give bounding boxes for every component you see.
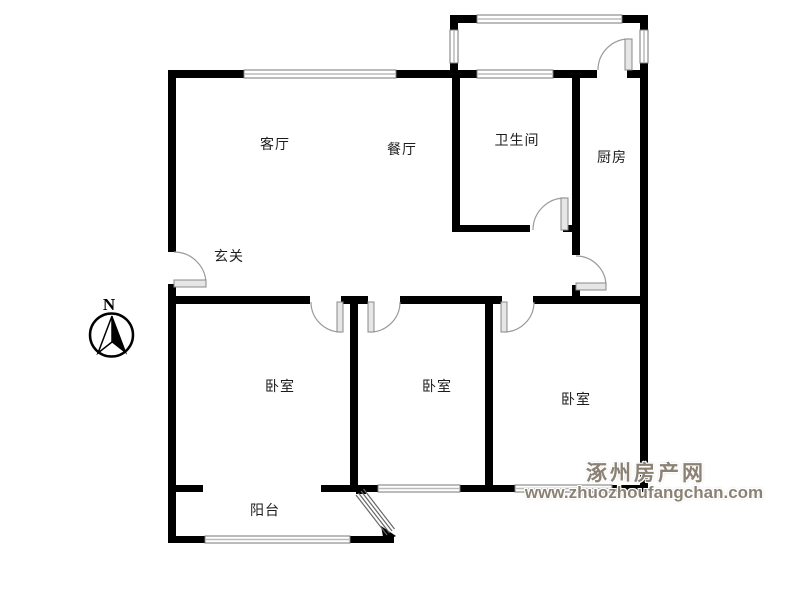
room-label-entry: 玄关 xyxy=(214,246,244,266)
doors xyxy=(174,39,632,332)
room-label-bathroom: 卫生间 xyxy=(495,130,540,150)
window-bedroom2-south xyxy=(378,485,460,492)
room-label-living-room: 客厅 xyxy=(260,134,290,154)
floor-plan-canvas: 客厅 餐厅 卫生间 厨房 玄关 卧室 卧室 卧室 阳台 N 涿州房产网 www.… xyxy=(0,0,800,600)
room-label-bedroom-1: 卧室 xyxy=(265,376,295,396)
window-balcony-south xyxy=(205,536,350,543)
window-kitchen-balcony-left xyxy=(450,30,458,63)
window-balcony-diagonal xyxy=(356,489,395,535)
watermark-site-url: www.zhuozhoufangchan.com xyxy=(525,483,763,503)
door-bedroom1 xyxy=(311,302,343,332)
window-kitchen-balcony-top xyxy=(477,15,622,23)
window-living-north xyxy=(244,70,396,78)
window-bathroom-north xyxy=(477,70,553,78)
compass-icon xyxy=(90,314,133,357)
room-label-bedroom-2: 卧室 xyxy=(422,376,452,396)
door-bedroom3 xyxy=(501,302,534,332)
room-label-kitchen: 厨房 xyxy=(597,147,627,167)
door-bathroom xyxy=(533,198,568,230)
floor-plan-drawing xyxy=(0,0,800,600)
compass-north-label: N xyxy=(103,295,115,315)
door-kitchen xyxy=(576,256,606,290)
walls xyxy=(168,15,648,543)
windows xyxy=(205,15,648,543)
room-label-bedroom-3: 卧室 xyxy=(561,389,591,409)
door-bedroom2 xyxy=(368,302,400,332)
room-label-dining-room: 餐厅 xyxy=(387,139,417,159)
window-kitchen-balcony-right xyxy=(640,30,648,63)
room-label-balcony: 阳台 xyxy=(250,500,280,520)
door-entry xyxy=(174,252,206,287)
door-kitchen-balcony xyxy=(598,39,632,70)
